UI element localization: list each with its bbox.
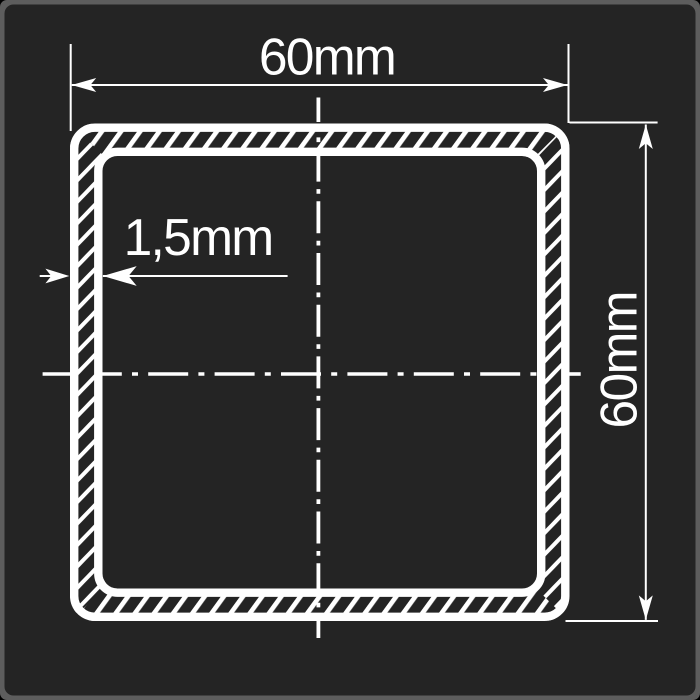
- svg-text:1,5mm: 1,5mm: [124, 208, 273, 266]
- svg-text:60mm: 60mm: [590, 292, 648, 428]
- svg-text:60mm: 60mm: [259, 28, 395, 86]
